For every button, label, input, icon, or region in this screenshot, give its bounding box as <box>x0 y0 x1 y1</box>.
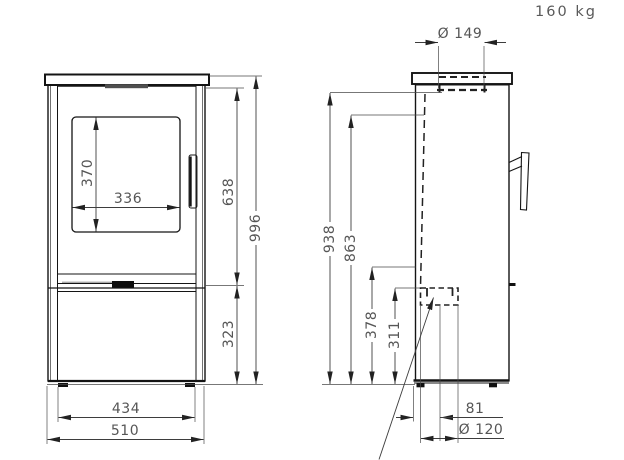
side-top-plate <box>412 73 512 84</box>
front-left-foot <box>58 383 68 387</box>
front-view-dimensions: 370 336 638 323 996 434 510 <box>47 76 264 444</box>
dim-label-378: 378 <box>364 311 380 339</box>
front-ash-lip-handle <box>112 281 134 288</box>
dim-label-311: 311 <box>387 321 403 349</box>
dim-label-938: 938 <box>322 225 338 253</box>
dim-label-feet-spacing: 434 <box>112 401 140 417</box>
stove-dimension-drawing: 370 336 638 323 996 434 510 <box>0 0 624 460</box>
dim-label-glass-width: 336 <box>114 191 142 207</box>
side-front-foot <box>489 384 497 388</box>
side-view-outline <box>412 73 529 387</box>
dim-label-upper-section: 638 <box>221 178 237 206</box>
weight-label: 160 kg <box>535 4 597 20</box>
side-latch <box>509 283 516 286</box>
dim-label-glass-height: 370 <box>80 159 96 187</box>
front-top-plate <box>45 75 209 86</box>
front-right-foot <box>185 383 195 387</box>
dim-label-top-flue: Ø 149 <box>438 26 483 42</box>
dim-label-rear-offset: 81 <box>466 401 485 417</box>
dim-label-bottom-flue: Ø 120 <box>459 422 504 438</box>
dim-label-base-section: 323 <box>221 320 237 348</box>
side-door-handle <box>521 153 530 211</box>
side-internal-flue-hidden <box>421 94 426 287</box>
dim-label-overall-height: 996 <box>248 214 264 242</box>
side-view-dimensions: Ø 149 938 863 378 311 81 Ø 120 <box>322 26 506 460</box>
dim-label-863: 863 <box>343 234 359 262</box>
dim-label-overall-width: 510 <box>111 423 139 439</box>
front-view-outline <box>45 75 209 388</box>
front-air-slot <box>105 84 148 88</box>
technical-drawing-canvas: 370 336 638 323 996 434 510 <box>0 0 624 460</box>
